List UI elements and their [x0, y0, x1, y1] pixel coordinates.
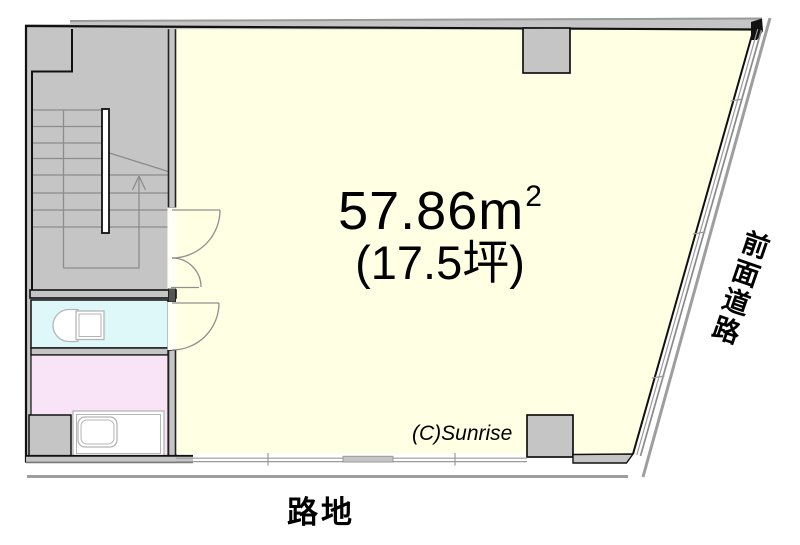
divider-wall-middle — [169, 288, 176, 302]
pillar-top — [523, 28, 570, 73]
bottom-window-mullion — [343, 456, 393, 462]
toilet — [53, 310, 104, 342]
pillar-bottom — [527, 415, 573, 457]
bottom-window — [176, 453, 527, 466]
wall-toilet-bath — [31, 348, 168, 355]
bottom-wall-right-wedge — [573, 454, 633, 463]
alley-label: 路地 — [287, 487, 355, 532]
area-label: 57.86m2 (17.5坪) — [287, 183, 593, 288]
divider-wall-upper — [169, 28, 176, 208]
floor-plan: 57.86m2 (17.5坪) (C)Sunrise 路地 前面道路 — [0, 0, 800, 545]
bathroom-corner-wall — [29, 415, 71, 457]
area-superscript: 2 — [525, 180, 543, 213]
area-tsubo: (17.5坪) — [287, 239, 593, 288]
toilet-tank — [76, 311, 104, 340]
stair-room-bottom-wall — [30, 290, 176, 298]
area-square-meters: 57.86m2 — [287, 183, 593, 239]
stair-center-wall — [102, 109, 109, 233]
copyright-label: (C)Sunrise — [412, 422, 512, 446]
entrance-door-gap — [168, 208, 177, 289]
toilet-bowl — [53, 310, 78, 342]
divider-wall-lower — [169, 350, 176, 458]
bath-unit — [73, 411, 164, 457]
bathtub — [78, 417, 117, 447]
toilet-door-gap — [168, 302, 177, 350]
bathroom — [29, 355, 168, 457]
